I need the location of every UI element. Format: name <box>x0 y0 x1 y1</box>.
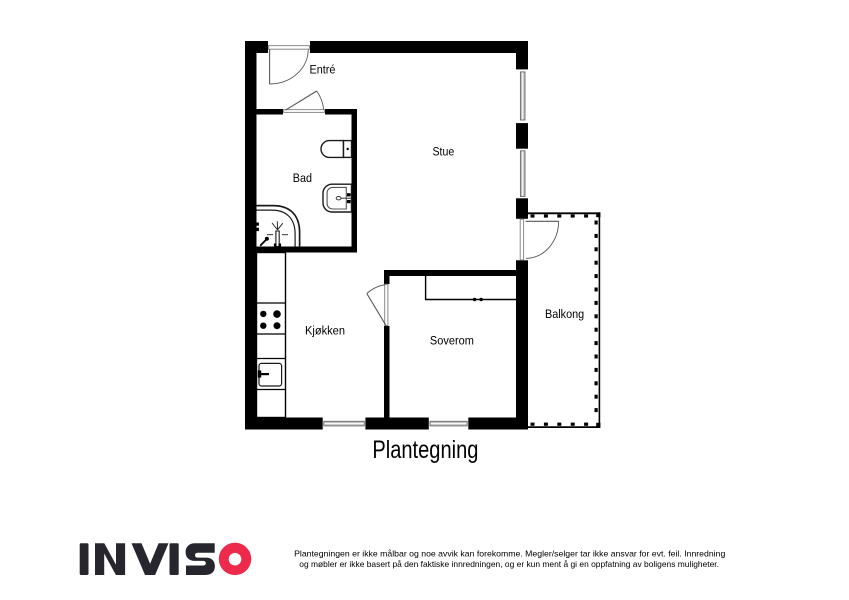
svg-text:Plantegning: Plantegning <box>372 436 478 464</box>
svg-text:Balkong: Balkong <box>545 307 584 321</box>
svg-text:Bad: Bad <box>293 171 312 185</box>
svg-text:Soverom: Soverom <box>430 334 474 348</box>
svg-text:og møbler er ikke basert på de: og møbler er ikke basert på den faktiske… <box>299 559 719 569</box>
svg-text:Stue: Stue <box>433 145 455 159</box>
svg-text:Entré: Entré <box>310 63 336 77</box>
svg-text:Kjøkken: Kjøkken <box>305 323 345 337</box>
svg-text:Plantegningen er ikke målbar o: Plantegningen er ikke målbar og noe avvi… <box>294 549 725 559</box>
